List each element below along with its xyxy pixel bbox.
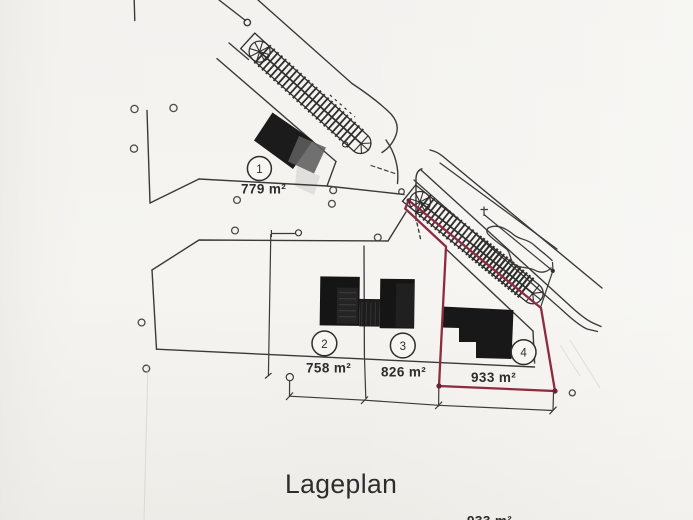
svg-text:826 m²: 826 m² [381,365,426,380]
svg-text:1: 1 [256,164,262,176]
svg-text:933 m²: 933 m² [471,370,516,385]
svg-text:779 m²: 779 m² [241,182,286,197]
svg-text:4: 4 [520,348,527,360]
svg-text:933 m²: 933 m² [467,514,512,520]
svg-text:3: 3 [400,341,406,353]
svg-text:758 m²: 758 m² [306,361,351,376]
svg-text:Lageplan: Lageplan [285,469,397,499]
svg-text:2: 2 [321,339,327,351]
